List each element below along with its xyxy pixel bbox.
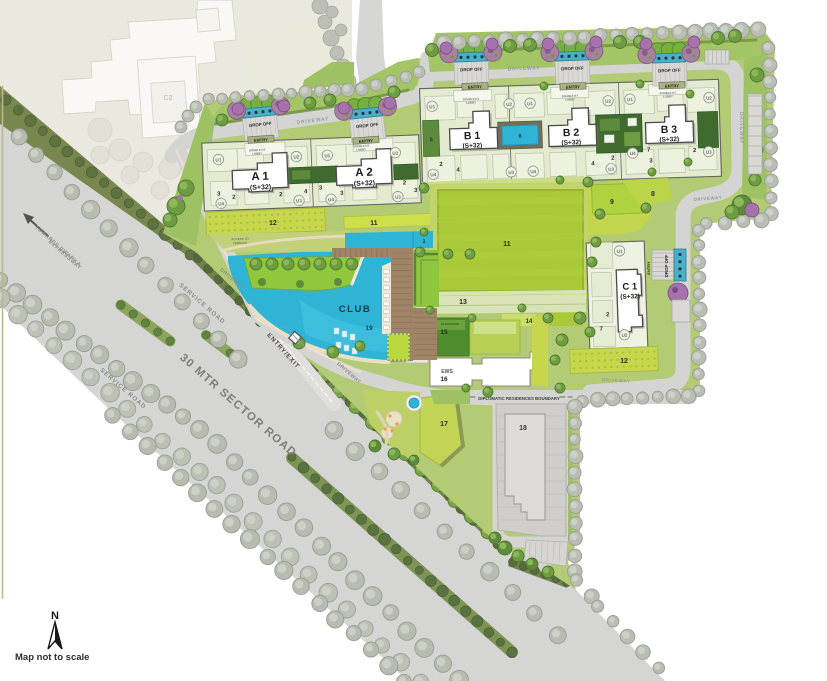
svg-text:DROP OFF: DROP OFF [658, 68, 681, 74]
svg-text:LOBBY: LOBBY [252, 151, 262, 155]
svg-text:ENTRY: ENTRY [646, 261, 651, 275]
svg-text:U2: U2 [392, 151, 399, 156]
svg-text:U4: U4 [218, 201, 225, 206]
svg-text:(S+32): (S+32) [620, 293, 640, 301]
svg-text:ENTRY: ENTRY [254, 137, 269, 143]
svg-text:LOBBY: LOBBY [466, 100, 476, 104]
svg-text:12: 12 [269, 220, 277, 227]
svg-text:U1: U1 [215, 157, 222, 162]
svg-text:DROP OFF: DROP OFF [561, 66, 584, 72]
svg-text:U2: U2 [605, 99, 611, 104]
svg-text:5: 5 [430, 137, 433, 143]
svg-text:ENTRY: ENTRY [566, 84, 580, 89]
svg-text:U2: U2 [621, 333, 627, 338]
svg-text:B 1: B 1 [464, 130, 481, 143]
svg-text:LOBBY: LOBBY [356, 147, 366, 151]
svg-text:15: 15 [440, 329, 448, 336]
svg-text:18: 18 [519, 425, 527, 432]
svg-text:U4: U4 [530, 169, 536, 174]
svg-text:C 1: C 1 [622, 281, 638, 293]
svg-text:Map not to scale: Map not to scale [15, 652, 89, 663]
svg-text:N: N [51, 610, 59, 622]
svg-text:8: 8 [651, 191, 655, 198]
svg-text:U4: U4 [430, 172, 436, 177]
svg-text:U1: U1 [617, 249, 623, 254]
svg-text:EWS: EWS [441, 369, 453, 375]
svg-text:U1: U1 [627, 97, 633, 102]
svg-text:6: 6 [518, 134, 521, 140]
svg-text:B 3: B 3 [661, 124, 678, 137]
svg-text:B 2: B 2 [563, 127, 580, 140]
svg-text:DROP OFF: DROP OFF [460, 67, 483, 73]
svg-text:U1: U1 [429, 104, 435, 109]
svg-text:A 2: A 2 [355, 167, 373, 180]
svg-text:TERRACE: TERRACE [233, 241, 248, 246]
svg-text:14: 14 [526, 319, 533, 325]
svg-text:1: 1 [422, 239, 425, 245]
svg-text:19: 19 [365, 325, 373, 332]
svg-text:U2: U2 [706, 96, 712, 101]
svg-text:C2: C2 [164, 95, 173, 102]
svg-text:ENTRY: ENTRY [468, 84, 482, 89]
svg-text:12: 12 [620, 358, 628, 365]
svg-text:LOBBY: LOBBY [663, 94, 673, 98]
svg-text:U4: U4 [630, 151, 636, 156]
svg-text:LOBBY: LOBBY [565, 97, 575, 101]
svg-text:U2: U2 [293, 154, 300, 159]
svg-text:(S+32): (S+32) [561, 139, 581, 147]
svg-text:(S+32): (S+32) [462, 142, 482, 150]
svg-text:U1: U1 [527, 101, 533, 106]
svg-text:DRIVEWAY: DRIVEWAY [508, 65, 541, 72]
svg-text:DRIVEWAY: DRIVEWAY [738, 112, 744, 145]
svg-text:16: 16 [440, 376, 448, 383]
svg-text:U3: U3 [296, 198, 303, 203]
svg-text:9: 9 [610, 199, 614, 206]
svg-text:U2: U2 [506, 102, 512, 107]
svg-text:U1: U1 [324, 153, 331, 158]
svg-text:U3: U3 [608, 167, 614, 172]
svg-text:(S+32): (S+32) [659, 136, 679, 144]
svg-text:17: 17 [440, 421, 448, 428]
svg-text:11: 11 [370, 220, 378, 227]
svg-text:U3: U3 [706, 150, 712, 155]
svg-text:U4: U4 [328, 197, 335, 202]
svg-text:GLASSHOUSE: GLASSHOUSE [441, 322, 459, 326]
svg-text:(S+32): (S+32) [354, 180, 375, 188]
svg-text:ENTRY: ENTRY [359, 138, 374, 144]
svg-text:A 1: A 1 [251, 171, 270, 184]
svg-text:DROP OFF: DROP OFF [664, 254, 669, 277]
svg-text:11: 11 [503, 241, 511, 248]
svg-text:ENTRY: ENTRY [665, 83, 679, 88]
svg-text:(S+32): (S+32) [250, 184, 271, 192]
svg-text:U3: U3 [508, 170, 514, 175]
svg-text:CLUB: CLUB [339, 304, 371, 315]
svg-text:U3: U3 [395, 195, 402, 200]
svg-text:13: 13 [459, 299, 467, 306]
